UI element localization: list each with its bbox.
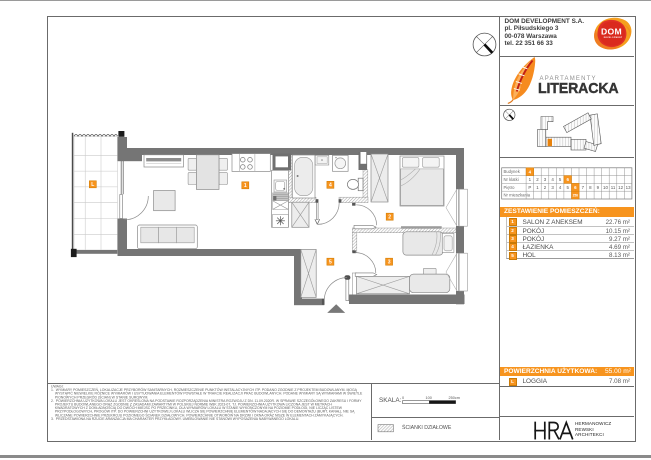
svg-text:Piętro: Piętro	[504, 185, 516, 190]
svg-text:1: 1	[536, 185, 539, 190]
svg-text:9: 9	[597, 185, 600, 190]
svg-text:256: 256	[573, 194, 579, 198]
svg-text:1: 1	[529, 177, 532, 182]
svg-text:2: 2	[544, 185, 547, 190]
svg-text:13: 13	[626, 185, 631, 190]
svg-text:3: 3	[544, 177, 547, 182]
svg-text:4: 4	[559, 185, 562, 190]
svg-text:1: 1	[244, 183, 247, 189]
svg-text:12: 12	[618, 185, 623, 190]
svg-text:11: 11	[611, 185, 616, 190]
svg-text:7: 7	[582, 185, 585, 190]
svg-text:100: 100	[426, 396, 432, 400]
svg-text:2: 2	[388, 215, 391, 221]
svg-text:10: 10	[603, 185, 608, 190]
svg-text:Nr klatki: Nr klatki	[504, 177, 519, 182]
svg-text:250cm: 250cm	[449, 396, 460, 400]
svg-text:5: 5	[566, 185, 569, 190]
svg-text:2: 2	[536, 177, 539, 182]
svg-text:P: P	[528, 185, 531, 190]
svg-text:Budynek: Budynek	[504, 169, 521, 174]
svg-text:5: 5	[329, 260, 332, 266]
svg-text:3: 3	[551, 185, 554, 190]
svg-text:3: 3	[388, 260, 391, 266]
svg-text:L: L	[91, 182, 94, 188]
svg-text:5: 5	[559, 177, 562, 182]
svg-text:8: 8	[589, 185, 592, 190]
svg-text:DEVELOPMENT: DEVELOPMENT	[604, 37, 623, 39]
svg-text:4: 4	[329, 183, 332, 189]
svg-text:Nr mieszkania: Nr mieszkania	[504, 193, 531, 198]
svg-text:DOM: DOM	[601, 27, 622, 37]
svg-text:0: 0	[402, 396, 404, 400]
svg-text:4: 4	[551, 177, 554, 182]
